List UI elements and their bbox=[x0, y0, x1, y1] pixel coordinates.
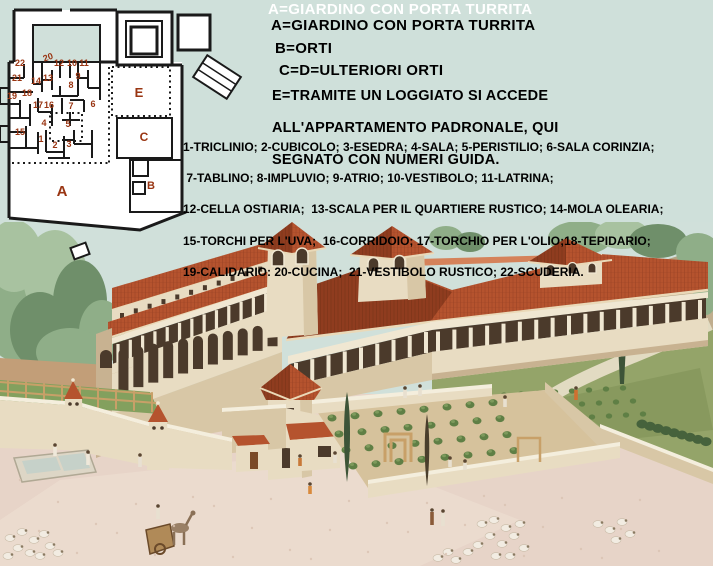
plan-detached-square bbox=[70, 243, 89, 260]
svg-text:C: C bbox=[140, 130, 149, 144]
svg-text:12: 12 bbox=[54, 58, 64, 68]
svg-text:E: E bbox=[135, 85, 144, 100]
room-list-line5: 19-CALIDARIO: 20-CUCINA; 21-VESTIBOLO RU… bbox=[183, 265, 584, 279]
room-list: 1-TRICLINIO; 2-CUBICOLO; 3-ESEDRA; 4-SAL… bbox=[183, 140, 663, 280]
svg-text:5: 5 bbox=[65, 119, 70, 129]
svg-text:18: 18 bbox=[22, 88, 32, 98]
room-list-line1: 1-TRICLINIO; 2-CUBICOLO; 3-ESEDRA; 4-SAL… bbox=[183, 140, 655, 154]
svg-text:19: 19 bbox=[7, 91, 17, 101]
svg-text:11: 11 bbox=[79, 58, 89, 68]
svg-text:6: 6 bbox=[90, 99, 95, 109]
legend-line-cd: C=D=ULTERIORI ORTI bbox=[279, 62, 443, 79]
plan-outbuilding-tilted bbox=[193, 55, 241, 99]
svg-text:14: 14 bbox=[31, 76, 41, 86]
scanned-plate: 22211918201210111413981716765415123ECBA … bbox=[0, 0, 713, 566]
svg-text:1: 1 bbox=[38, 134, 43, 144]
outbuilding-small bbox=[232, 435, 270, 472]
svg-text:10: 10 bbox=[67, 58, 77, 68]
outbuilding-window bbox=[318, 446, 331, 457]
legend-line-b: B=ORTI bbox=[275, 40, 332, 57]
room-list-line2: 7-TABLINO; 8-IMPLUVIO; 9-ATRIO; 10-VESTI… bbox=[183, 171, 554, 185]
svg-text:9: 9 bbox=[75, 71, 80, 81]
svg-text:2: 2 bbox=[52, 140, 57, 150]
legend-title-ghost: A=GIARDINO CON PORTA TURRITA bbox=[268, 1, 532, 18]
svg-text:7: 7 bbox=[68, 101, 73, 111]
svg-text:A: A bbox=[57, 183, 68, 200]
svg-text:15: 15 bbox=[15, 127, 25, 137]
svg-text:B: B bbox=[147, 180, 155, 192]
outbuilding-door bbox=[250, 452, 258, 469]
svg-text:21: 21 bbox=[12, 73, 22, 83]
svg-text:22: 22 bbox=[15, 58, 25, 68]
svg-text:16: 16 bbox=[44, 100, 54, 110]
svg-text:8: 8 bbox=[68, 80, 73, 90]
legend-line-a: A=GIARDINO CON PORTA TURRITA bbox=[271, 17, 535, 34]
room-list-line3: 12-CELLA OSTIARIA; 13-SCALA PER IL QUART… bbox=[183, 202, 663, 216]
svg-text:4: 4 bbox=[41, 118, 46, 128]
svg-text:3: 3 bbox=[66, 139, 71, 149]
svg-text:17: 17 bbox=[33, 100, 43, 110]
room-list-line4: 15-TORCHI PER L'UVA; 16-CORRIDOIO; 17-TO… bbox=[183, 234, 651, 248]
svg-text:13: 13 bbox=[43, 73, 53, 83]
